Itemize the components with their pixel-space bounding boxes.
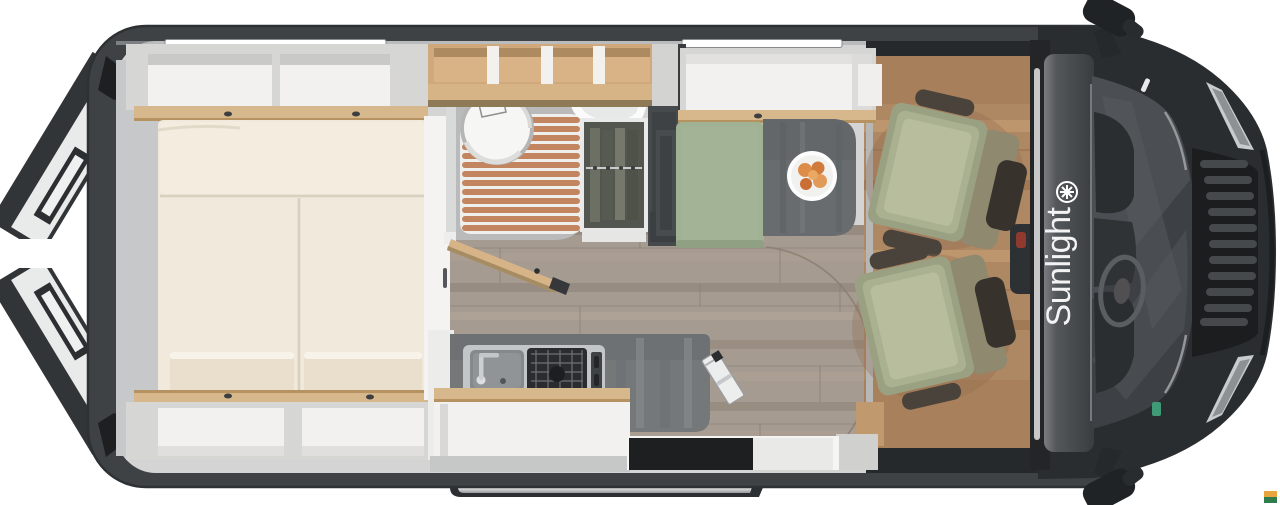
svg-text:Sunlight: Sunlight (1040, 207, 1078, 327)
